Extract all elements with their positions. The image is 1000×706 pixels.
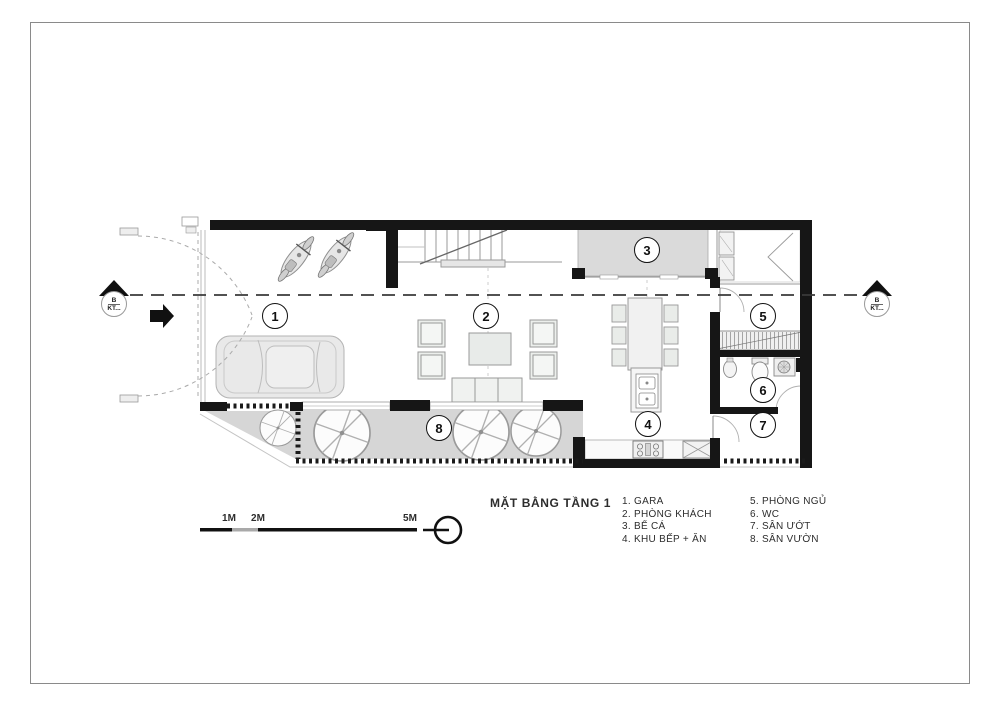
scale-bar	[200, 528, 417, 532]
entry-arrow-icon	[150, 304, 174, 328]
room-badge-be-ca: 3	[634, 237, 660, 263]
shower-icon	[774, 358, 795, 376]
section-label: B	[871, 297, 884, 305]
legend-item: 3. BỂ CÁ	[622, 521, 712, 534]
legend-column-1: 1. GARA 2. PHÒNG KHÁCH 3. BỂ CÁ 4. KHU B…	[622, 496, 712, 546]
section-sheet-ref: KT...	[870, 305, 883, 312]
motorbike-icon	[272, 231, 321, 286]
room-badge-phong-khach: 2	[473, 303, 499, 329]
legend-item: 7. SÂN ƯỚT	[750, 521, 826, 534]
section-label: B	[108, 297, 121, 305]
floor-plan-drawing	[0, 0, 1000, 706]
section-sheet-ref: KT...	[107, 305, 120, 312]
garage	[120, 227, 360, 402]
room-badge-khu-bep-an: 4	[635, 411, 661, 437]
floor-plan-sheet: B KT... B KT... 1 2 3 4 5 6 7 8 MẶT BẰNG…	[0, 0, 1000, 706]
legend-item: 5. PHÒNG NGỦ	[750, 496, 826, 509]
room-badge-san-vuon: 8	[426, 415, 452, 441]
room-badge-phong-ngu: 5	[750, 303, 776, 329]
bedroom	[717, 228, 803, 350]
legend-item: 6. WC	[750, 509, 826, 522]
room-badge-san-uot: 7	[750, 412, 776, 438]
legend-column-2: 5. PHÒNG NGỦ 6. WC 7. SÂN ƯỚT 8. SÂN VƯỜ…	[750, 496, 826, 546]
island-sink-icon	[631, 368, 661, 412]
living-room	[418, 268, 557, 402]
scale-label-5m: 5M	[403, 513, 417, 524]
scale-label-1m: 1M	[222, 513, 236, 524]
staircase	[398, 230, 562, 267]
section-marker-left: B KT...	[99, 280, 129, 317]
counter-sink-icon	[683, 441, 713, 458]
sink-icon	[724, 358, 737, 378]
north-indicator-icon	[423, 517, 461, 543]
legend-item: 2. PHÒNG KHÁCH	[622, 509, 712, 522]
page-title: MẶT BẰNG TẦNG 1	[490, 496, 611, 510]
legend-item: 8. SÂN VƯỜN	[750, 534, 826, 547]
stove-icon	[633, 441, 663, 458]
section-marker-right: B KT...	[862, 280, 892, 317]
wardrobe	[717, 331, 802, 350]
scale-label-2m: 2M	[251, 513, 265, 524]
car-icon	[216, 336, 344, 398]
legend-item: 1. GARA	[622, 496, 712, 509]
room-badge-wc: 6	[750, 377, 776, 403]
room-badge-gara: 1	[262, 303, 288, 329]
legend-item: 4. KHU BẾP + ĂN	[622, 534, 712, 547]
motorbike-icon	[312, 227, 361, 282]
